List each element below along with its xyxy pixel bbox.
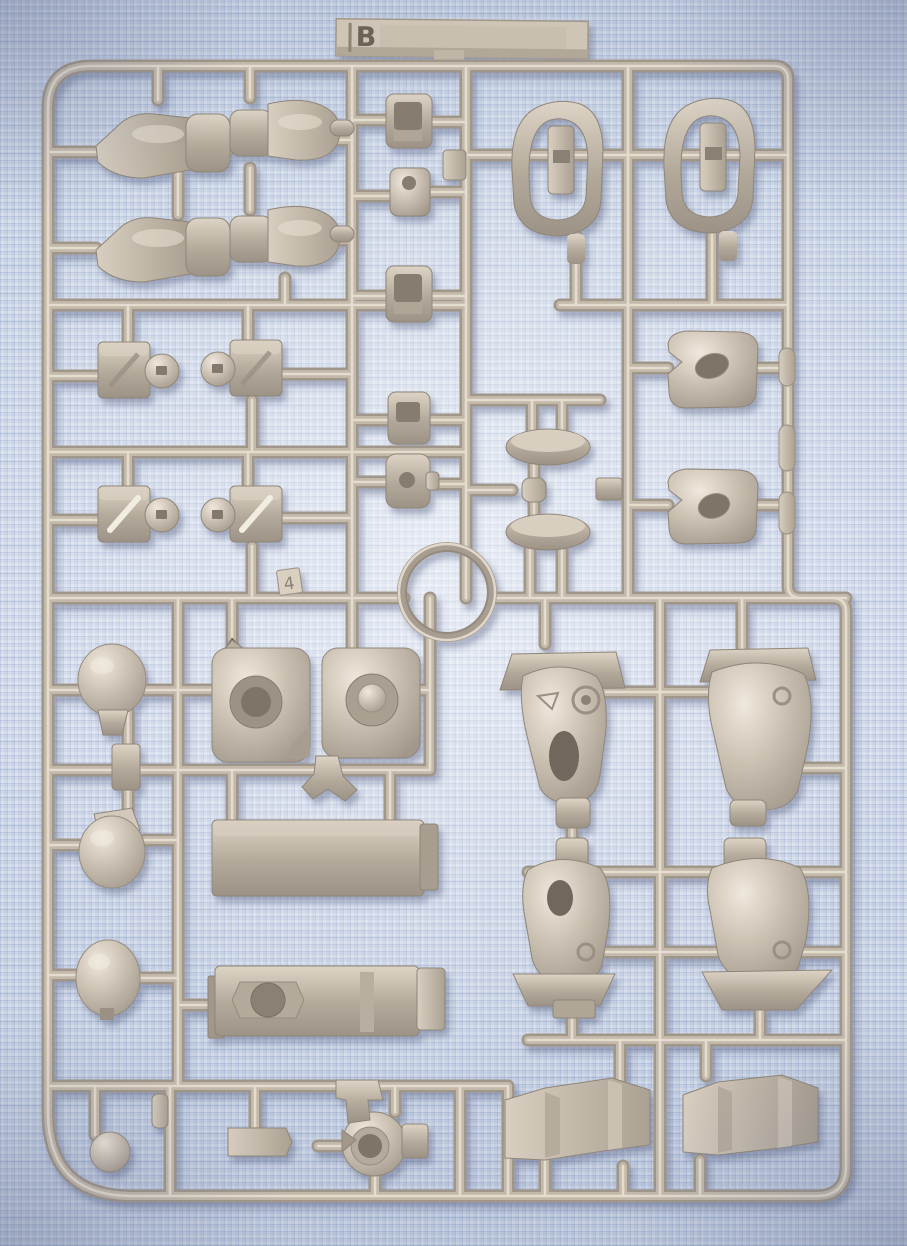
part-forearm-2 bbox=[230, 100, 354, 160]
part-leg-armor-2 bbox=[700, 648, 816, 826]
photo-of-model-kit-sprue: B 4 bbox=[0, 0, 907, 1246]
part-leg-armor-3 bbox=[513, 838, 615, 1018]
part-link-block bbox=[112, 744, 140, 790]
part-ring bbox=[399, 544, 495, 640]
part-y-joint bbox=[302, 756, 357, 801]
part-blank-plate bbox=[212, 820, 438, 896]
part-notched-armor-1 bbox=[668, 331, 758, 408]
part-shoulder-armor-1 bbox=[212, 638, 310, 762]
part-oval-frame-1 bbox=[512, 101, 603, 264]
part-yoke-2 bbox=[683, 1075, 818, 1155]
part-socket-1 bbox=[386, 94, 432, 148]
part-small-bracket bbox=[443, 150, 466, 180]
part-disc-2 bbox=[506, 514, 590, 550]
part-small-clip bbox=[596, 478, 622, 500]
tab-emboss-panel bbox=[380, 25, 566, 50]
part-pin bbox=[152, 1094, 168, 1128]
sprue-letter: B bbox=[356, 22, 377, 53]
part-small-bracket-2 bbox=[228, 1128, 292, 1156]
part-forearm-1 bbox=[96, 114, 230, 178]
part-ball-joint-1 bbox=[78, 644, 146, 735]
part-clip-1 bbox=[390, 168, 430, 216]
sprue-runner: B 4 bbox=[0, 0, 907, 1246]
part-disc-1 bbox=[506, 429, 590, 465]
part-socket-4 bbox=[386, 454, 439, 508]
part-leg-armor-4 bbox=[702, 838, 832, 1010]
part-shoulder-armor-2 bbox=[322, 648, 420, 758]
part-number-tag: 4 bbox=[276, 568, 302, 596]
part-plate-with-hole bbox=[208, 966, 445, 1038]
part-socket-3 bbox=[388, 392, 430, 444]
part-leg-armor-1 bbox=[500, 652, 625, 828]
part-small-ball bbox=[90, 1132, 130, 1172]
part-joint-cube-1 bbox=[98, 342, 179, 398]
part-ball-joint-2 bbox=[79, 808, 145, 888]
part-notched-armor-2 bbox=[668, 469, 758, 544]
part-joint-cube-4 bbox=[201, 486, 282, 542]
part-forearm-3 bbox=[96, 218, 230, 282]
part-ball-joint-3 bbox=[76, 940, 140, 1020]
part-yoke-1 bbox=[505, 1078, 650, 1160]
part-socket-2 bbox=[386, 266, 432, 322]
part-link-cylinder bbox=[522, 478, 546, 502]
rail-gate-bulges bbox=[779, 348, 795, 534]
part-joint-cube-3 bbox=[98, 486, 179, 542]
part-joint-cube-2 bbox=[201, 340, 282, 396]
